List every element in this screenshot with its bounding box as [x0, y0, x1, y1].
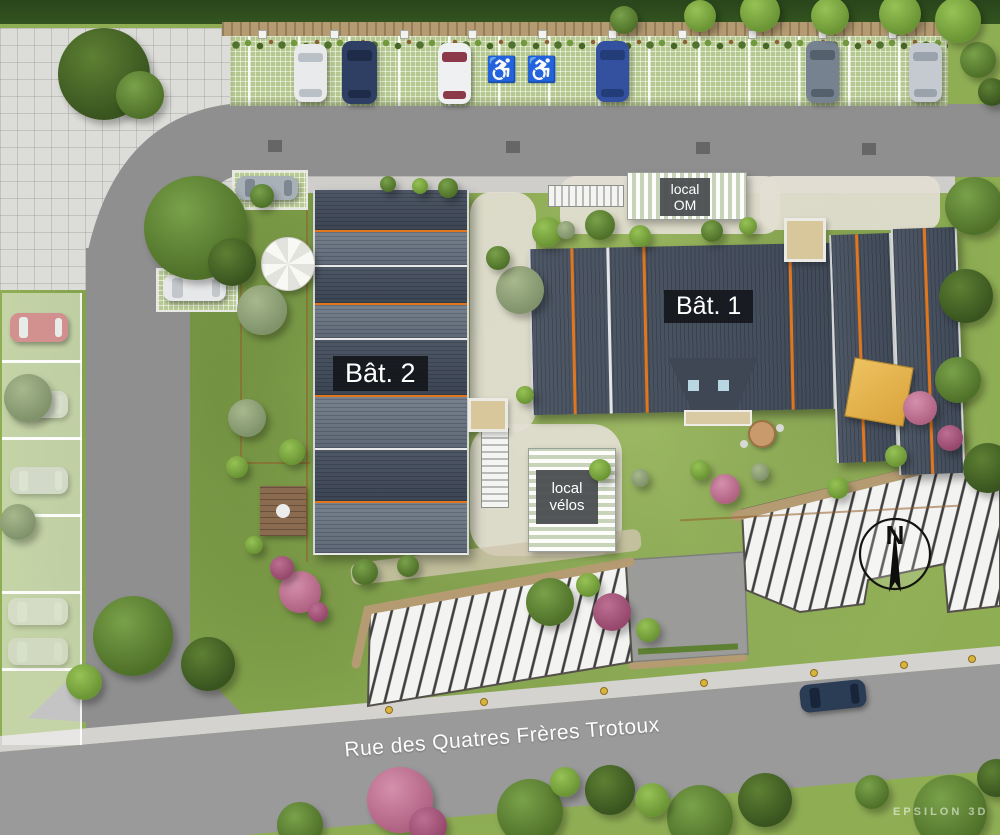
watermark: EPSILON 3D: [893, 806, 988, 818]
local-om-line1: local: [671, 181, 700, 197]
parking-shrub-strip: [230, 37, 948, 52]
terrace-deck: [260, 486, 306, 536]
bat2-roof-section: [315, 232, 467, 265]
left-road: [86, 248, 190, 745]
sand-square-2: [468, 398, 508, 432]
yellow-pergola: [844, 357, 914, 427]
visitor-pad-1: [232, 170, 308, 210]
top-parking-row: [230, 36, 948, 106]
bat2-roof-section: [315, 450, 467, 501]
local-om-line2: OM: [674, 197, 697, 213]
building-bat1-roof-mid: [829, 233, 899, 463]
central-path: [470, 192, 536, 432]
parasol: [261, 237, 315, 291]
bat2-roof-section: [315, 305, 467, 338]
garden-chair: [776, 424, 784, 432]
bat2-roof-section: [315, 503, 467, 553]
bat1-label: Bât. 1: [664, 290, 753, 323]
local-velos-label: local vélos: [536, 470, 598, 524]
bat1-porch: [684, 410, 752, 426]
road-corner: [88, 104, 232, 250]
entry-stairs-top: [548, 185, 624, 207]
top-hedge: [0, 0, 1000, 24]
building-bat1-roof-right: [891, 227, 966, 475]
local-velos-line1: local: [552, 480, 583, 497]
garden-fence: [240, 200, 242, 462]
local-om-label: local OM: [660, 178, 710, 216]
skylight: [718, 380, 729, 391]
bat2-roof-section: [315, 190, 467, 230]
garden-fence: [240, 462, 310, 464]
visitor-pad-2: [156, 268, 238, 312]
skylight: [688, 380, 699, 391]
site-plan: local OM local vélos ♿♿ Bât. 2 Bât. 1 Ru…: [0, 0, 1000, 835]
top-stone-wall: [222, 22, 952, 36]
garden-chair: [740, 440, 748, 448]
sand-square-1: [784, 218, 826, 262]
compass: N: [850, 510, 940, 600]
top-road: [230, 104, 1000, 177]
garden-table: [748, 420, 776, 448]
offsite-parking-strip: [2, 293, 82, 745]
bat2-roof-section: [315, 397, 467, 448]
bat2-label: Bât. 2: [333, 356, 428, 391]
bat2-roof-section: [315, 267, 467, 303]
building-bat1-roof-left: [528, 243, 835, 415]
local-velos-line2: vélos: [549, 497, 584, 514]
deck-table: [276, 504, 290, 518]
stairs-mid: [481, 428, 509, 508]
